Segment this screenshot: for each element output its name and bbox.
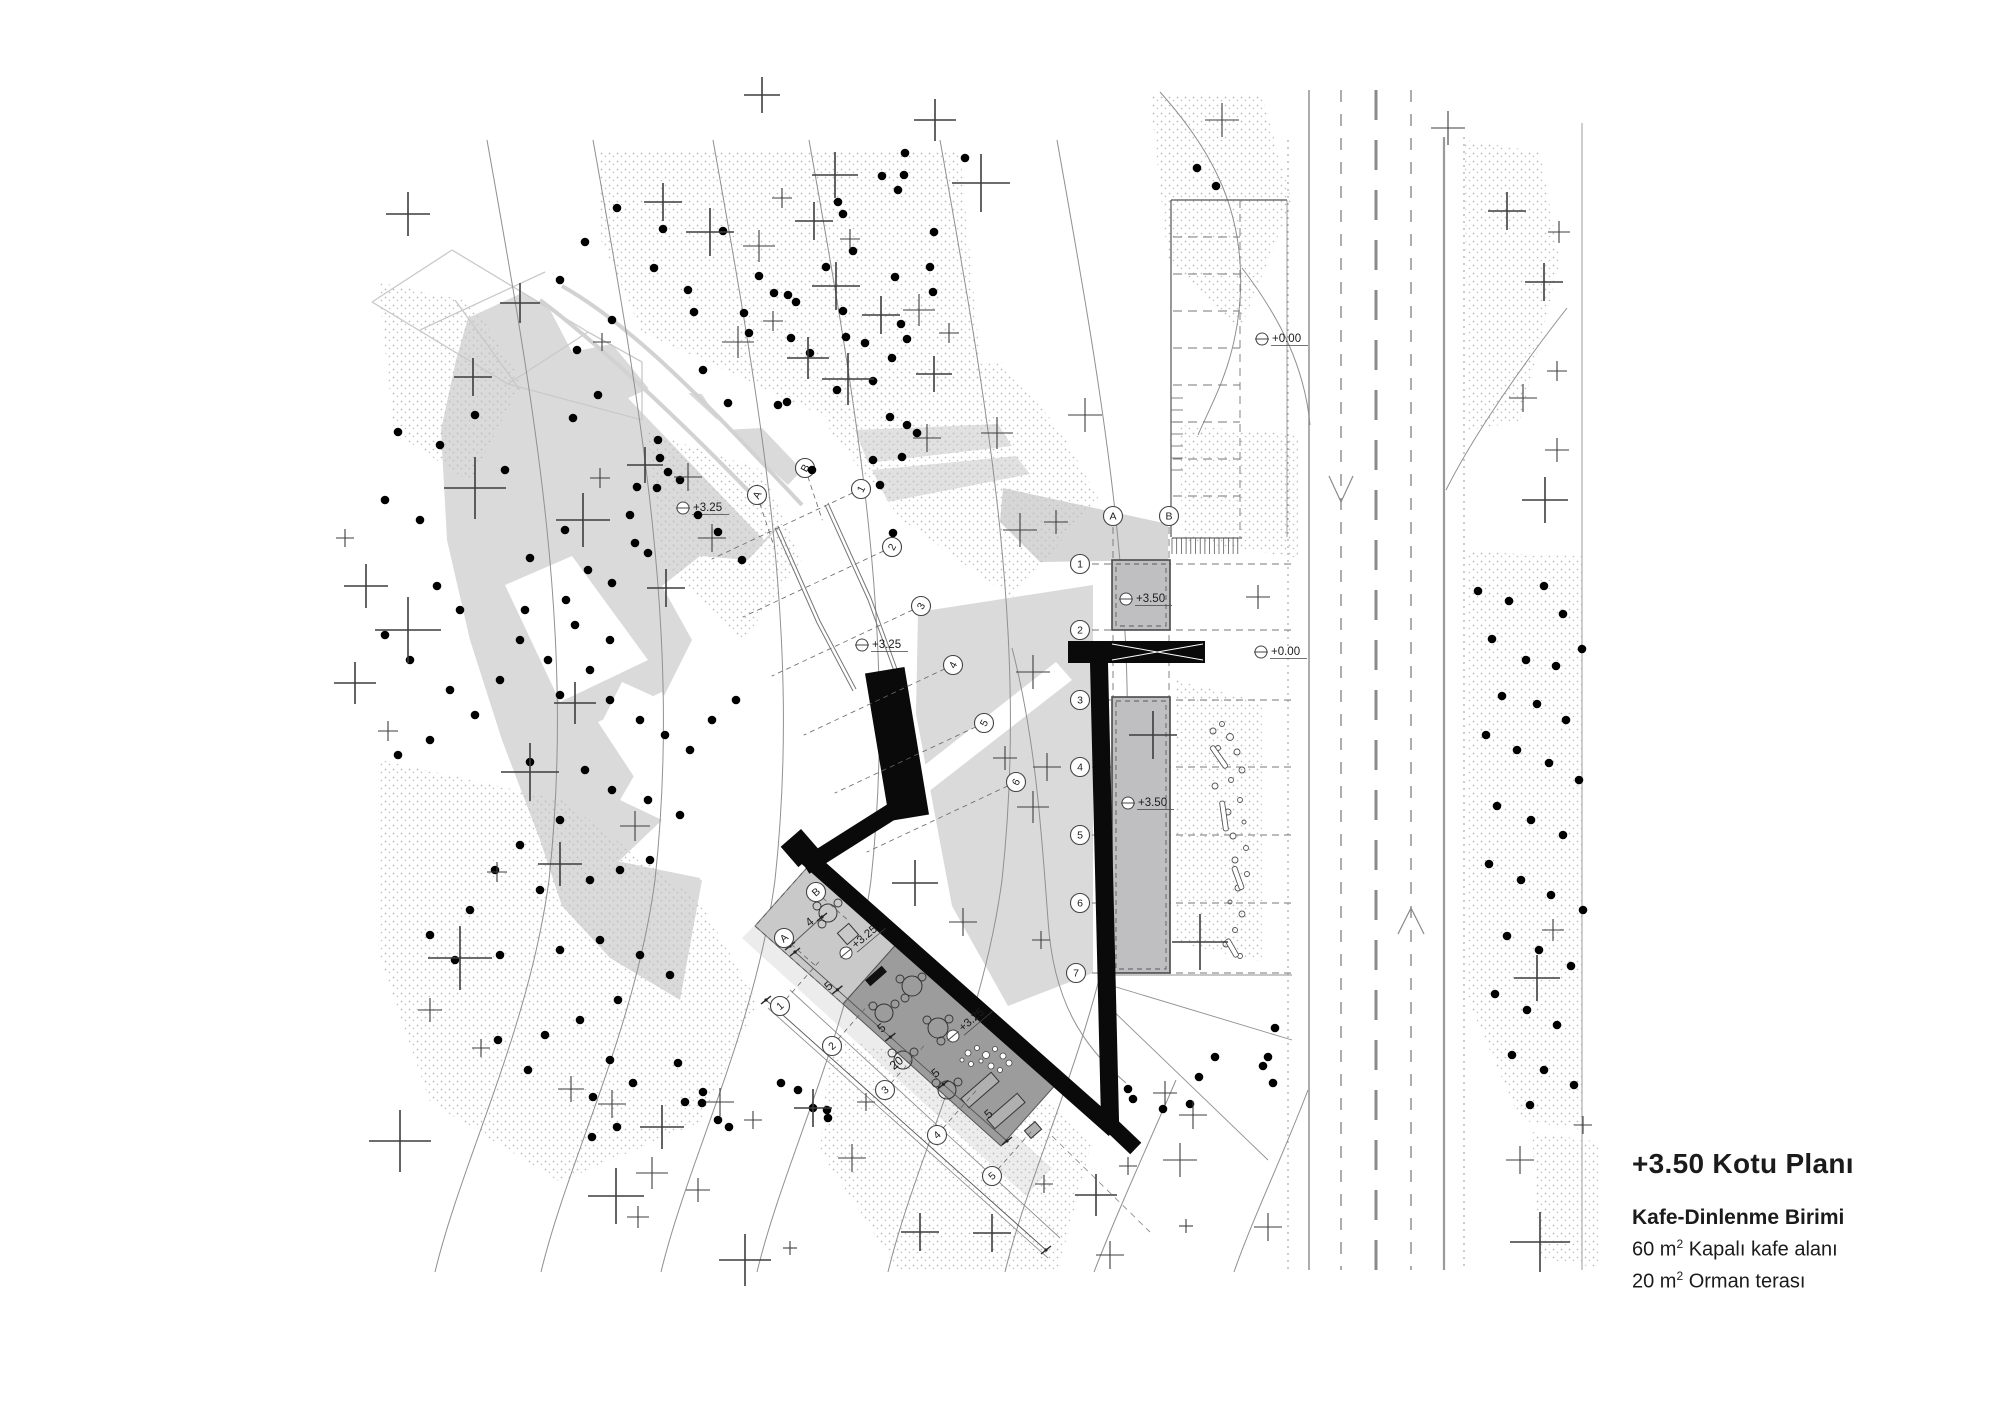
- tree-icon: [544, 656, 553, 665]
- tree-icon: [681, 1098, 690, 1107]
- tree-icon: [869, 456, 878, 465]
- tree-icon: [581, 238, 590, 247]
- tree-icon: [903, 421, 912, 430]
- stone-icon: [993, 1047, 998, 1052]
- tree-icon: [406, 656, 415, 665]
- tree-icon: [839, 307, 848, 316]
- tree-icon: [699, 1088, 708, 1097]
- tree-icon: [888, 354, 897, 363]
- tree-icon: [586, 666, 595, 675]
- tree-icon: [494, 1036, 503, 1045]
- tree-icon: [556, 691, 565, 700]
- unit-title: Kafe-Dinlenme Birimi: [1632, 1206, 1972, 1230]
- tree-icon: [1264, 1053, 1273, 1062]
- stone-icon: [969, 1062, 974, 1067]
- grid-bubble-label: 5: [1077, 830, 1083, 842]
- tree-icon: [1474, 587, 1483, 596]
- tree-icon: [1526, 1101, 1535, 1110]
- tree-icon: [613, 204, 622, 213]
- tree-icon: [426, 736, 435, 745]
- level-value: +0.00: [1271, 646, 1300, 658]
- tree-icon: [1508, 1051, 1517, 1060]
- tree-icon: [636, 951, 645, 960]
- grid-bubble-label: 6: [1077, 898, 1083, 910]
- tree-icon: [1578, 645, 1587, 654]
- tree-icon: [556, 816, 565, 825]
- grid-bubble-label: 1: [1077, 559, 1083, 571]
- dimension-node: [1044, 1248, 1047, 1251]
- tree-icon: [466, 906, 475, 915]
- grid-bubble-label: 7: [1073, 968, 1079, 980]
- tree-icon: [833, 386, 842, 395]
- tree-icon: [1485, 860, 1494, 869]
- building-shadow: [916, 585, 1093, 1006]
- tree-icon: [898, 453, 907, 462]
- level-marker: +3.25: [676, 502, 729, 515]
- tree-icon: [1269, 1079, 1278, 1088]
- tree-icon: [1527, 816, 1536, 825]
- tree-icon: [436, 441, 445, 450]
- dimension-node: [1005, 1139, 1008, 1142]
- tree-icon: [834, 198, 843, 207]
- tree-icon: [608, 316, 617, 325]
- tree-icon: [822, 263, 831, 272]
- site-line: [1106, 984, 1292, 1040]
- tree-icon: [886, 413, 895, 422]
- tree-icon: [839, 210, 848, 219]
- tree-icon: [644, 549, 653, 558]
- ground-texture: [378, 760, 758, 1182]
- tree-icon: [1575, 776, 1584, 785]
- tree-icon: [1545, 759, 1554, 768]
- title-block: +3.50 Kotu Planı Kafe-Dinlenme Birimi 60…: [1632, 1148, 1972, 1293]
- level-value: +0.00: [1272, 333, 1301, 345]
- stone-icon: [983, 1052, 990, 1059]
- tree-icon: [1124, 1085, 1133, 1094]
- grid-bubble-label: B: [1165, 511, 1172, 523]
- tree-icon: [656, 454, 665, 463]
- tree-icon: [1195, 1073, 1204, 1082]
- tree-icon: [606, 1056, 615, 1065]
- tree-icon: [714, 1116, 723, 1125]
- tree-icon: [738, 556, 747, 565]
- stone-icon: [1006, 1060, 1012, 1066]
- tree-icon: [608, 579, 617, 588]
- tree-icon: [594, 391, 603, 400]
- tree-icon: [1271, 1024, 1280, 1033]
- tree-icon: [1523, 1006, 1532, 1015]
- tree-icon: [1505, 597, 1514, 606]
- tree-icon: [394, 751, 403, 760]
- tree-icon: [1559, 831, 1568, 840]
- tree-icon: [1562, 716, 1571, 725]
- tree-icon: [930, 228, 939, 237]
- tree-icon: [774, 401, 783, 410]
- tree-icon: [646, 856, 655, 865]
- tree-icon: [770, 289, 779, 298]
- tree-icon: [571, 621, 580, 630]
- grid-bubble-label: 4: [1077, 762, 1083, 774]
- building-wall: [1108, 1122, 1130, 1143]
- tree-icon: [573, 346, 582, 355]
- tree-icon: [889, 529, 898, 538]
- tree-icon: [708, 716, 717, 725]
- building-wall: [1068, 641, 1205, 663]
- tree-icon: [381, 631, 390, 640]
- tree-icon: [608, 786, 617, 795]
- tree-icon: [433, 582, 442, 591]
- tree-icon: [674, 1059, 683, 1068]
- tree-icon: [842, 333, 851, 342]
- stone-icon: [979, 1059, 983, 1063]
- tree-icon: [1513, 746, 1522, 755]
- tree-icon: [451, 956, 460, 965]
- tree-icon: [794, 1086, 803, 1095]
- tree-icon: [586, 876, 595, 885]
- program-line: 20 m2 Orman terası: [1632, 1269, 1972, 1294]
- tree-icon: [541, 1031, 550, 1040]
- tree-icon: [869, 377, 878, 386]
- tree-icon: [659, 225, 668, 234]
- tree-icon: [561, 526, 570, 535]
- tree-icon: [526, 554, 535, 563]
- tree-icon: [524, 1066, 533, 1075]
- tree-icon: [606, 696, 615, 705]
- ground-texture: [1468, 552, 1582, 1130]
- tree-icon: [569, 414, 578, 423]
- tree-icon: [471, 411, 480, 420]
- tree-icon: [1211, 1053, 1220, 1062]
- building-wall: [812, 800, 910, 862]
- tree-icon: [666, 971, 675, 980]
- architectural-plan-page: 4552055AB1234567AB123456BA12345+3.25+3.2…: [0, 0, 2000, 1414]
- tree-icon: [903, 335, 912, 344]
- tree-icon: [416, 516, 425, 525]
- tree-icon: [676, 811, 685, 820]
- tree-icon: [576, 1016, 585, 1025]
- tree-icon: [755, 272, 764, 281]
- stone-icon: [998, 1068, 1003, 1073]
- level-marker: +0.00: [1254, 646, 1307, 659]
- tree-icon: [491, 866, 500, 875]
- tree-icon: [1491, 990, 1500, 999]
- tree-icon: [1540, 582, 1549, 591]
- tree-icon: [1533, 700, 1542, 709]
- tree-icon: [426, 931, 435, 940]
- tree-icon: [806, 349, 815, 358]
- tree-icon: [1503, 932, 1512, 941]
- tree-icon: [698, 1099, 707, 1108]
- tree-icon: [556, 276, 565, 285]
- tree-icon: [588, 1133, 597, 1142]
- roof-slab: [1112, 697, 1170, 973]
- level-marker: +3.50: [1121, 797, 1174, 810]
- level-marker: +3.25: [855, 639, 908, 652]
- tree-icon: [894, 186, 903, 195]
- tree-icon: [381, 496, 390, 505]
- tree-icon: [876, 481, 885, 490]
- tree-icon: [1579, 906, 1588, 915]
- tree-icon: [516, 636, 525, 645]
- tree-icon: [1193, 164, 1202, 173]
- tree-icon: [1552, 662, 1561, 671]
- tree-icon: [777, 1079, 786, 1088]
- tree-icon: [521, 606, 530, 615]
- tree-icon: [614, 996, 623, 1005]
- tree-icon: [581, 766, 590, 775]
- tree-icon: [1570, 1081, 1579, 1090]
- tree-icon: [644, 796, 653, 805]
- tree-icon: [745, 329, 754, 338]
- ramp-rail: [825, 505, 898, 682]
- tree-icon: [787, 334, 796, 343]
- tree-icon: [650, 264, 659, 273]
- dimension-node: [889, 1035, 892, 1038]
- ground-texture: [1465, 140, 1560, 430]
- tree-icon: [861, 339, 870, 348]
- level-value: +3.50: [1136, 593, 1165, 605]
- tree-icon: [1547, 891, 1556, 900]
- tree-icon: [654, 436, 663, 445]
- level-value: +3.50: [1138, 797, 1167, 809]
- tree-icon: [471, 711, 480, 720]
- tree-icon: [714, 528, 723, 537]
- ground-texture: [1175, 680, 1262, 962]
- grid-bubble-label: 2: [1077, 625, 1083, 637]
- slab-layer: [1112, 560, 1170, 973]
- tree-icon: [792, 298, 801, 307]
- tree-icon: [661, 731, 670, 740]
- dimension-node: [820, 915, 823, 918]
- tree-icon: [901, 149, 910, 158]
- tree-icon: [878, 172, 887, 181]
- tree-icon: [596, 936, 605, 945]
- tree-icon: [961, 154, 970, 163]
- building-wall: [888, 690, 906, 798]
- tree-icon: [824, 1114, 833, 1123]
- tree-icon: [456, 606, 465, 615]
- tree-icon: [725, 1123, 734, 1132]
- tree-icon: [1517, 876, 1526, 885]
- level-marker: +3.50: [1119, 593, 1172, 606]
- tree-icon: [1522, 656, 1531, 665]
- tree-icon: [823, 1106, 832, 1115]
- tree-icon: [501, 466, 510, 475]
- tree-icon: [496, 676, 505, 685]
- stone-icon: [960, 1058, 964, 1062]
- tree-icon: [690, 308, 699, 317]
- dimension-node: [764, 998, 767, 1001]
- tree-icon: [719, 227, 728, 236]
- stone-icon: [965, 1050, 971, 1056]
- tree-icon: [584, 566, 593, 575]
- tree-icon: [1482, 731, 1491, 740]
- tree-icon: [613, 1123, 622, 1132]
- dimension-node: [793, 950, 796, 953]
- grid-bubble-label: A: [1109, 511, 1116, 523]
- tree-icon: [732, 696, 741, 705]
- tree-icon: [900, 171, 909, 180]
- area-label: Orman terası: [1683, 1270, 1805, 1292]
- tree-icon: [784, 291, 793, 300]
- tree-icon: [636, 716, 645, 725]
- tree-icon: [929, 288, 938, 297]
- tree-icon: [394, 428, 403, 437]
- tree-icon: [633, 483, 642, 492]
- tree-icon: [1259, 1062, 1268, 1071]
- tree-icon: [694, 511, 703, 520]
- tree-icon: [1567, 962, 1576, 971]
- tree-icon: [724, 399, 733, 408]
- tree-icon: [686, 746, 695, 755]
- level-value: +3.25: [872, 639, 901, 651]
- tree-icon: [562, 596, 571, 605]
- ground-texture: [1532, 1132, 1600, 1268]
- stone-icon: [1000, 1053, 1006, 1059]
- tree-icon: [1540, 1066, 1549, 1075]
- tree-icon: [653, 484, 662, 493]
- tree-icon: [699, 366, 708, 375]
- area-value: 20 m: [1632, 1270, 1676, 1292]
- stone-icon: [975, 1046, 980, 1051]
- ramp-layer: [775, 503, 901, 691]
- tree-icon: [808, 466, 817, 475]
- tree-icon: [783, 398, 792, 407]
- tree-icon: [897, 320, 906, 329]
- tree-icon: [740, 309, 749, 318]
- tree-icon: [616, 866, 625, 875]
- tree-icon: [1159, 1105, 1168, 1114]
- tree-icon: [1212, 182, 1221, 191]
- tree-icon: [1498, 692, 1507, 701]
- tree-icon: [926, 263, 935, 272]
- tree-icon: [606, 636, 615, 645]
- contour-line: [1234, 1090, 1308, 1272]
- area-label: Kapalı kafe alanı: [1683, 1239, 1838, 1261]
- building-wall: [1099, 663, 1110, 1120]
- dimension-node: [836, 988, 839, 991]
- tree-icon: [913, 429, 922, 438]
- page-title: +3.50 Kotu Planı: [1632, 1148, 1972, 1180]
- tree-icon: [626, 511, 635, 520]
- tree-icon: [1553, 1021, 1562, 1030]
- tree-icon: [684, 286, 693, 295]
- tree-icon: [496, 951, 505, 960]
- program-line: 60 m2 Kapalı kafe alanı: [1632, 1237, 1972, 1262]
- tree-icon: [664, 468, 673, 477]
- tree-icon: [629, 1079, 638, 1088]
- tree-icon: [1559, 610, 1568, 619]
- tree-icon: [1535, 946, 1544, 955]
- tree-icon: [536, 886, 545, 895]
- tree-icon: [1488, 635, 1497, 644]
- tree-icon: [446, 686, 455, 695]
- tree-icon: [516, 841, 525, 850]
- level-marker: +0.00: [1255, 333, 1308, 346]
- tree-icon: [891, 273, 900, 282]
- grid-bubble-label: 3: [1077, 695, 1083, 707]
- tree-icon: [1493, 802, 1502, 811]
- tree-icon: [631, 539, 640, 548]
- tree-icon: [1129, 1095, 1138, 1104]
- stone-icon: [988, 1063, 994, 1069]
- tree-icon: [589, 1093, 598, 1102]
- dimension-node: [942, 1083, 945, 1086]
- tree-icon: [556, 946, 565, 955]
- area-value: 60 m: [1632, 1239, 1676, 1261]
